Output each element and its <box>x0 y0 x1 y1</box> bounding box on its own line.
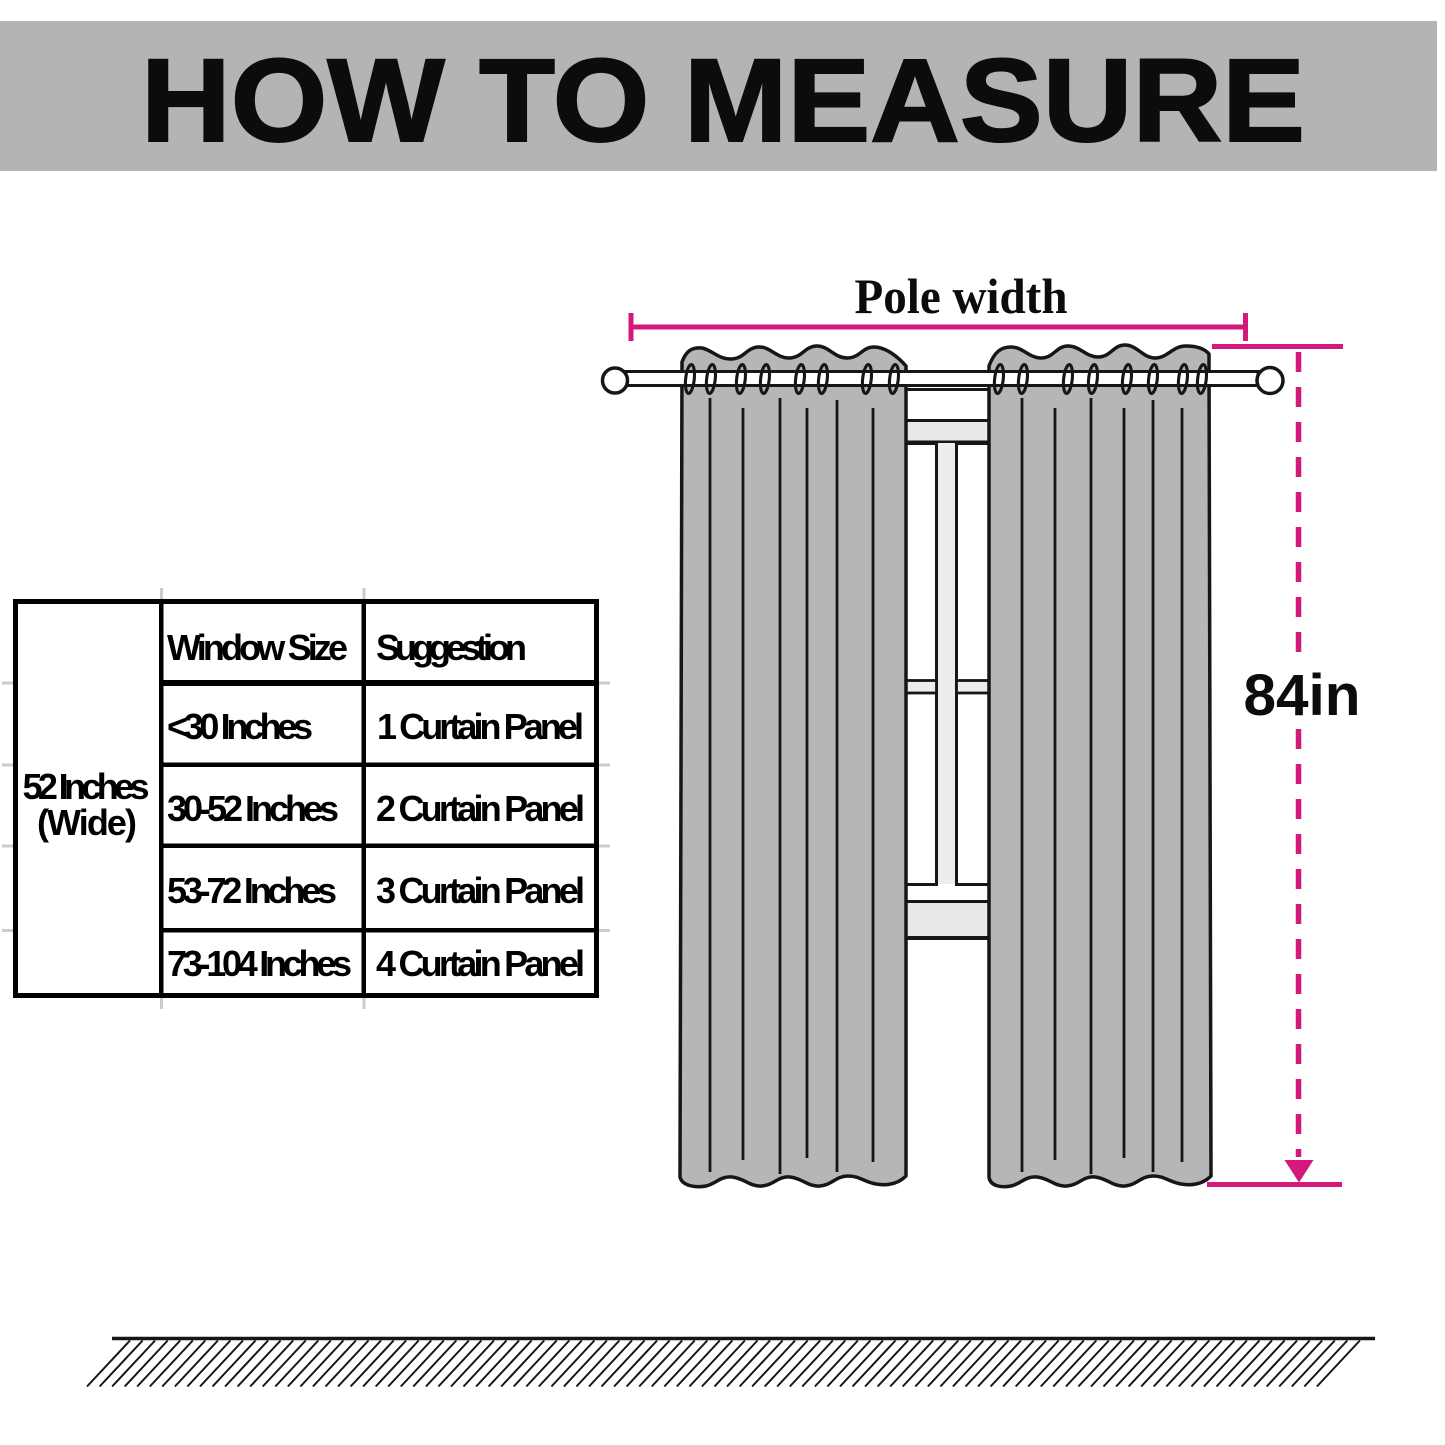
svg-text:Window Size: Window Size <box>167 627 348 668</box>
svg-text:HOW TO MEASURE: HOW TO MEASURE <box>141 35 1305 167</box>
svg-text:2 Curtain Panel: 2 Curtain Panel <box>376 788 585 829</box>
svg-text:52 Inches: 52 Inches <box>23 766 150 807</box>
svg-text:73-104 Inches: 73-104 Inches <box>167 943 352 984</box>
svg-text:53-72 Inches: 53-72 Inches <box>167 870 337 911</box>
svg-text:Suggestion: Suggestion <box>376 627 527 668</box>
svg-text:Pole width: Pole width <box>855 268 1068 324</box>
svg-text:1 Curtain Panel: 1 Curtain Panel <box>377 706 584 747</box>
svg-text:84in: 84in <box>1244 663 1361 728</box>
svg-text:<30 Inches: <30 Inches <box>167 706 313 747</box>
svg-text:4 Curtain Panel: 4 Curtain Panel <box>376 943 585 984</box>
svg-text:30-52 Inches: 30-52 Inches <box>167 788 339 829</box>
svg-text:3 Curtain Panel: 3 Curtain Panel <box>376 870 585 911</box>
svg-text:(Wide): (Wide) <box>37 802 137 843</box>
